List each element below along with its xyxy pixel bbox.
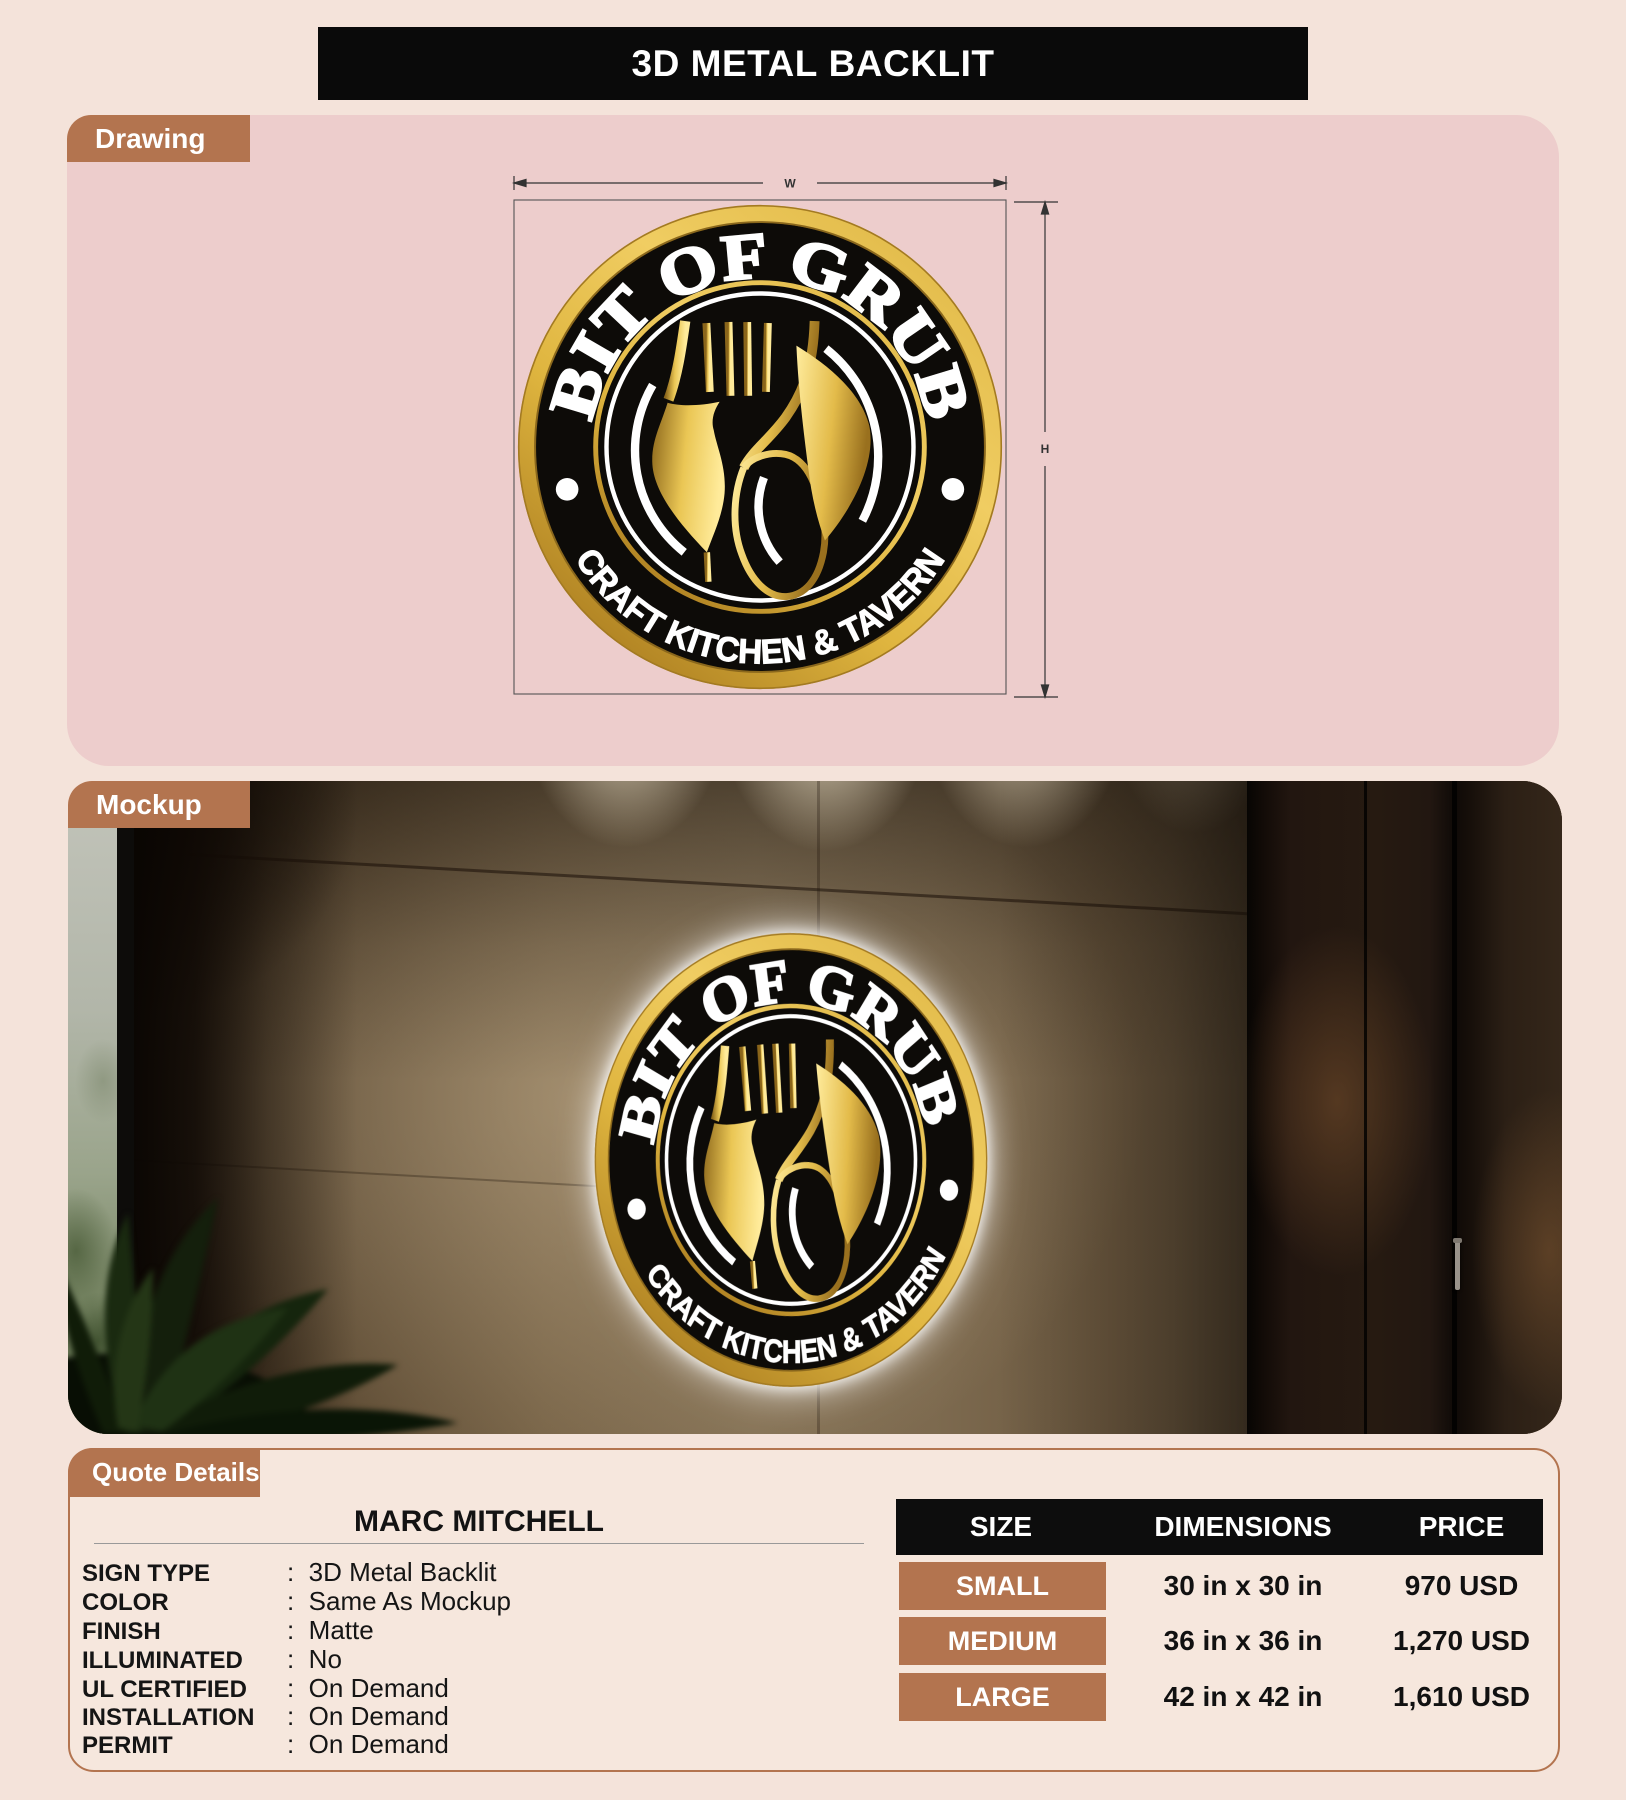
svg-text:H: H: [1041, 442, 1050, 456]
svg-text:W: W: [784, 177, 796, 191]
